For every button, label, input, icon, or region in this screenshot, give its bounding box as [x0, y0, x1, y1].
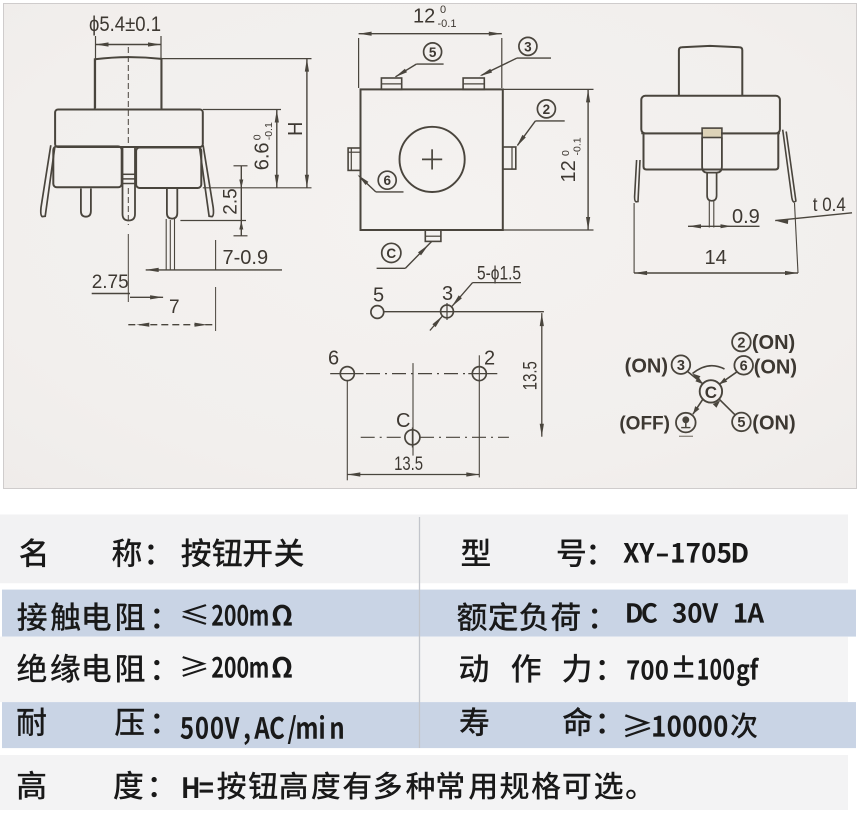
svg-text:6.6: 6.6: [252, 142, 274, 170]
svg-text:2: 2: [543, 102, 551, 117]
svg-text:13.5: 13.5: [521, 361, 542, 390]
svg-text:7-0.9: 7-0.9: [223, 247, 269, 269]
svg-text:0: 0: [440, 4, 446, 16]
svg-text:C: C: [396, 410, 410, 432]
svg-text:2.5: 2.5: [220, 188, 241, 214]
svg-text:12: 12: [413, 6, 435, 28]
svg-text:H: H: [285, 122, 307, 136]
svg-text:5: 5: [429, 45, 437, 60]
svg-text:5: 5: [737, 415, 745, 431]
svg-text:C: C: [705, 383, 717, 402]
svg-text:14: 14: [705, 247, 727, 269]
svg-text:(OFF): (OFF): [619, 413, 670, 434]
svg-text:2: 2: [484, 348, 495, 370]
svg-text:5-ϕ1.5: 5-ϕ1.5: [477, 264, 521, 285]
svg-text:6: 6: [328, 348, 339, 370]
svg-text:0.9: 0.9: [732, 206, 760, 228]
svg-text:6: 6: [383, 173, 391, 188]
svg-text:3: 3: [524, 39, 532, 54]
svg-text:(ON): (ON): [752, 412, 795, 434]
svg-text:(ON): (ON): [752, 332, 795, 354]
svg-text:-0.1: -0.1: [263, 122, 275, 140]
svg-text:-0.1: -0.1: [438, 18, 457, 30]
svg-text:(ON): (ON): [625, 355, 668, 377]
svg-text:6: 6: [740, 359, 748, 375]
svg-text:2: 2: [737, 335, 745, 351]
svg-text:0: 0: [560, 150, 572, 156]
svg-text:5: 5: [373, 285, 384, 307]
svg-text:0: 0: [252, 134, 264, 140]
svg-text:3: 3: [677, 358, 685, 374]
svg-text:-0.1: -0.1: [572, 137, 584, 155]
svg-text:2.75: 2.75: [92, 272, 129, 293]
svg-text:C: C: [386, 246, 396, 261]
svg-text:13.5: 13.5: [394, 454, 423, 475]
svg-text:7: 7: [169, 297, 180, 318]
svg-text:12: 12: [558, 160, 580, 182]
svg-text:t 0.4: t 0.4: [813, 195, 846, 216]
svg-text:(ON): (ON): [754, 356, 797, 378]
svg-text:ϕ5.4±0.1: ϕ5.4±0.1: [89, 13, 161, 36]
svg-text:3: 3: [442, 283, 453, 305]
